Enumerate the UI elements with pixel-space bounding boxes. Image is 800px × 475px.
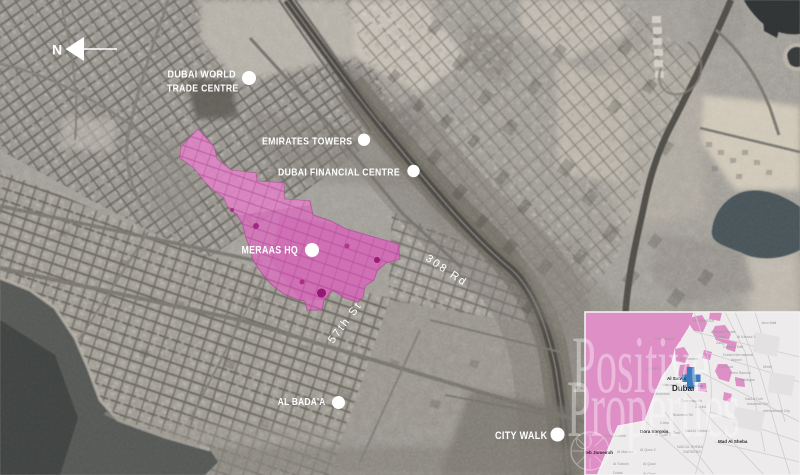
svg-text:TRADE CENTRE: TRADE CENTRE (167, 83, 239, 94)
svg-text:Al Sufouh: Al Sufouh (613, 462, 629, 466)
svg-text:International City: International City (763, 409, 790, 413)
svg-text:N: N (52, 42, 62, 58)
svg-text:Properties: Properties (567, 364, 740, 454)
svg-text:DUBAI WORLD: DUBAI WORLD (168, 69, 237, 80)
svg-text:Airport: Airport (731, 358, 742, 362)
svg-text:Mirdif: Mirdif (763, 365, 772, 369)
svg-text:Al Kahoul 1: Al Kahoul 1 (737, 335, 755, 339)
svg-text:DUBAI FINANCIAL CENTRE: DUBAI FINANCIAL CENTRE (278, 167, 400, 178)
svg-text:Al Quoz: Al Quoz (643, 462, 656, 466)
svg-text:School: School (715, 335, 726, 339)
svg-text:Century Mall: Century Mall (723, 345, 743, 349)
svg-text:Dubai International: Dubai International (723, 353, 753, 357)
svg-text:Industrial Sm: Industrial Sm (747, 402, 768, 406)
svg-text:EMIRATES TOWERS: EMIRATES TOWERS (262, 136, 353, 147)
svg-text:Ashfred Private: Ashfred Private (711, 330, 736, 334)
svg-text:CITY WALK: CITY WALK (495, 430, 548, 442)
svg-text:MERAAS HQ: MERAAS HQ (242, 245, 299, 257)
svg-text:Jeco Mall: Jeco Mall (761, 321, 776, 325)
svg-text:Nad-a Turb: Nad-a Turb (745, 397, 763, 401)
svg-text:AL BADA'A: AL BADA'A (278, 396, 326, 408)
